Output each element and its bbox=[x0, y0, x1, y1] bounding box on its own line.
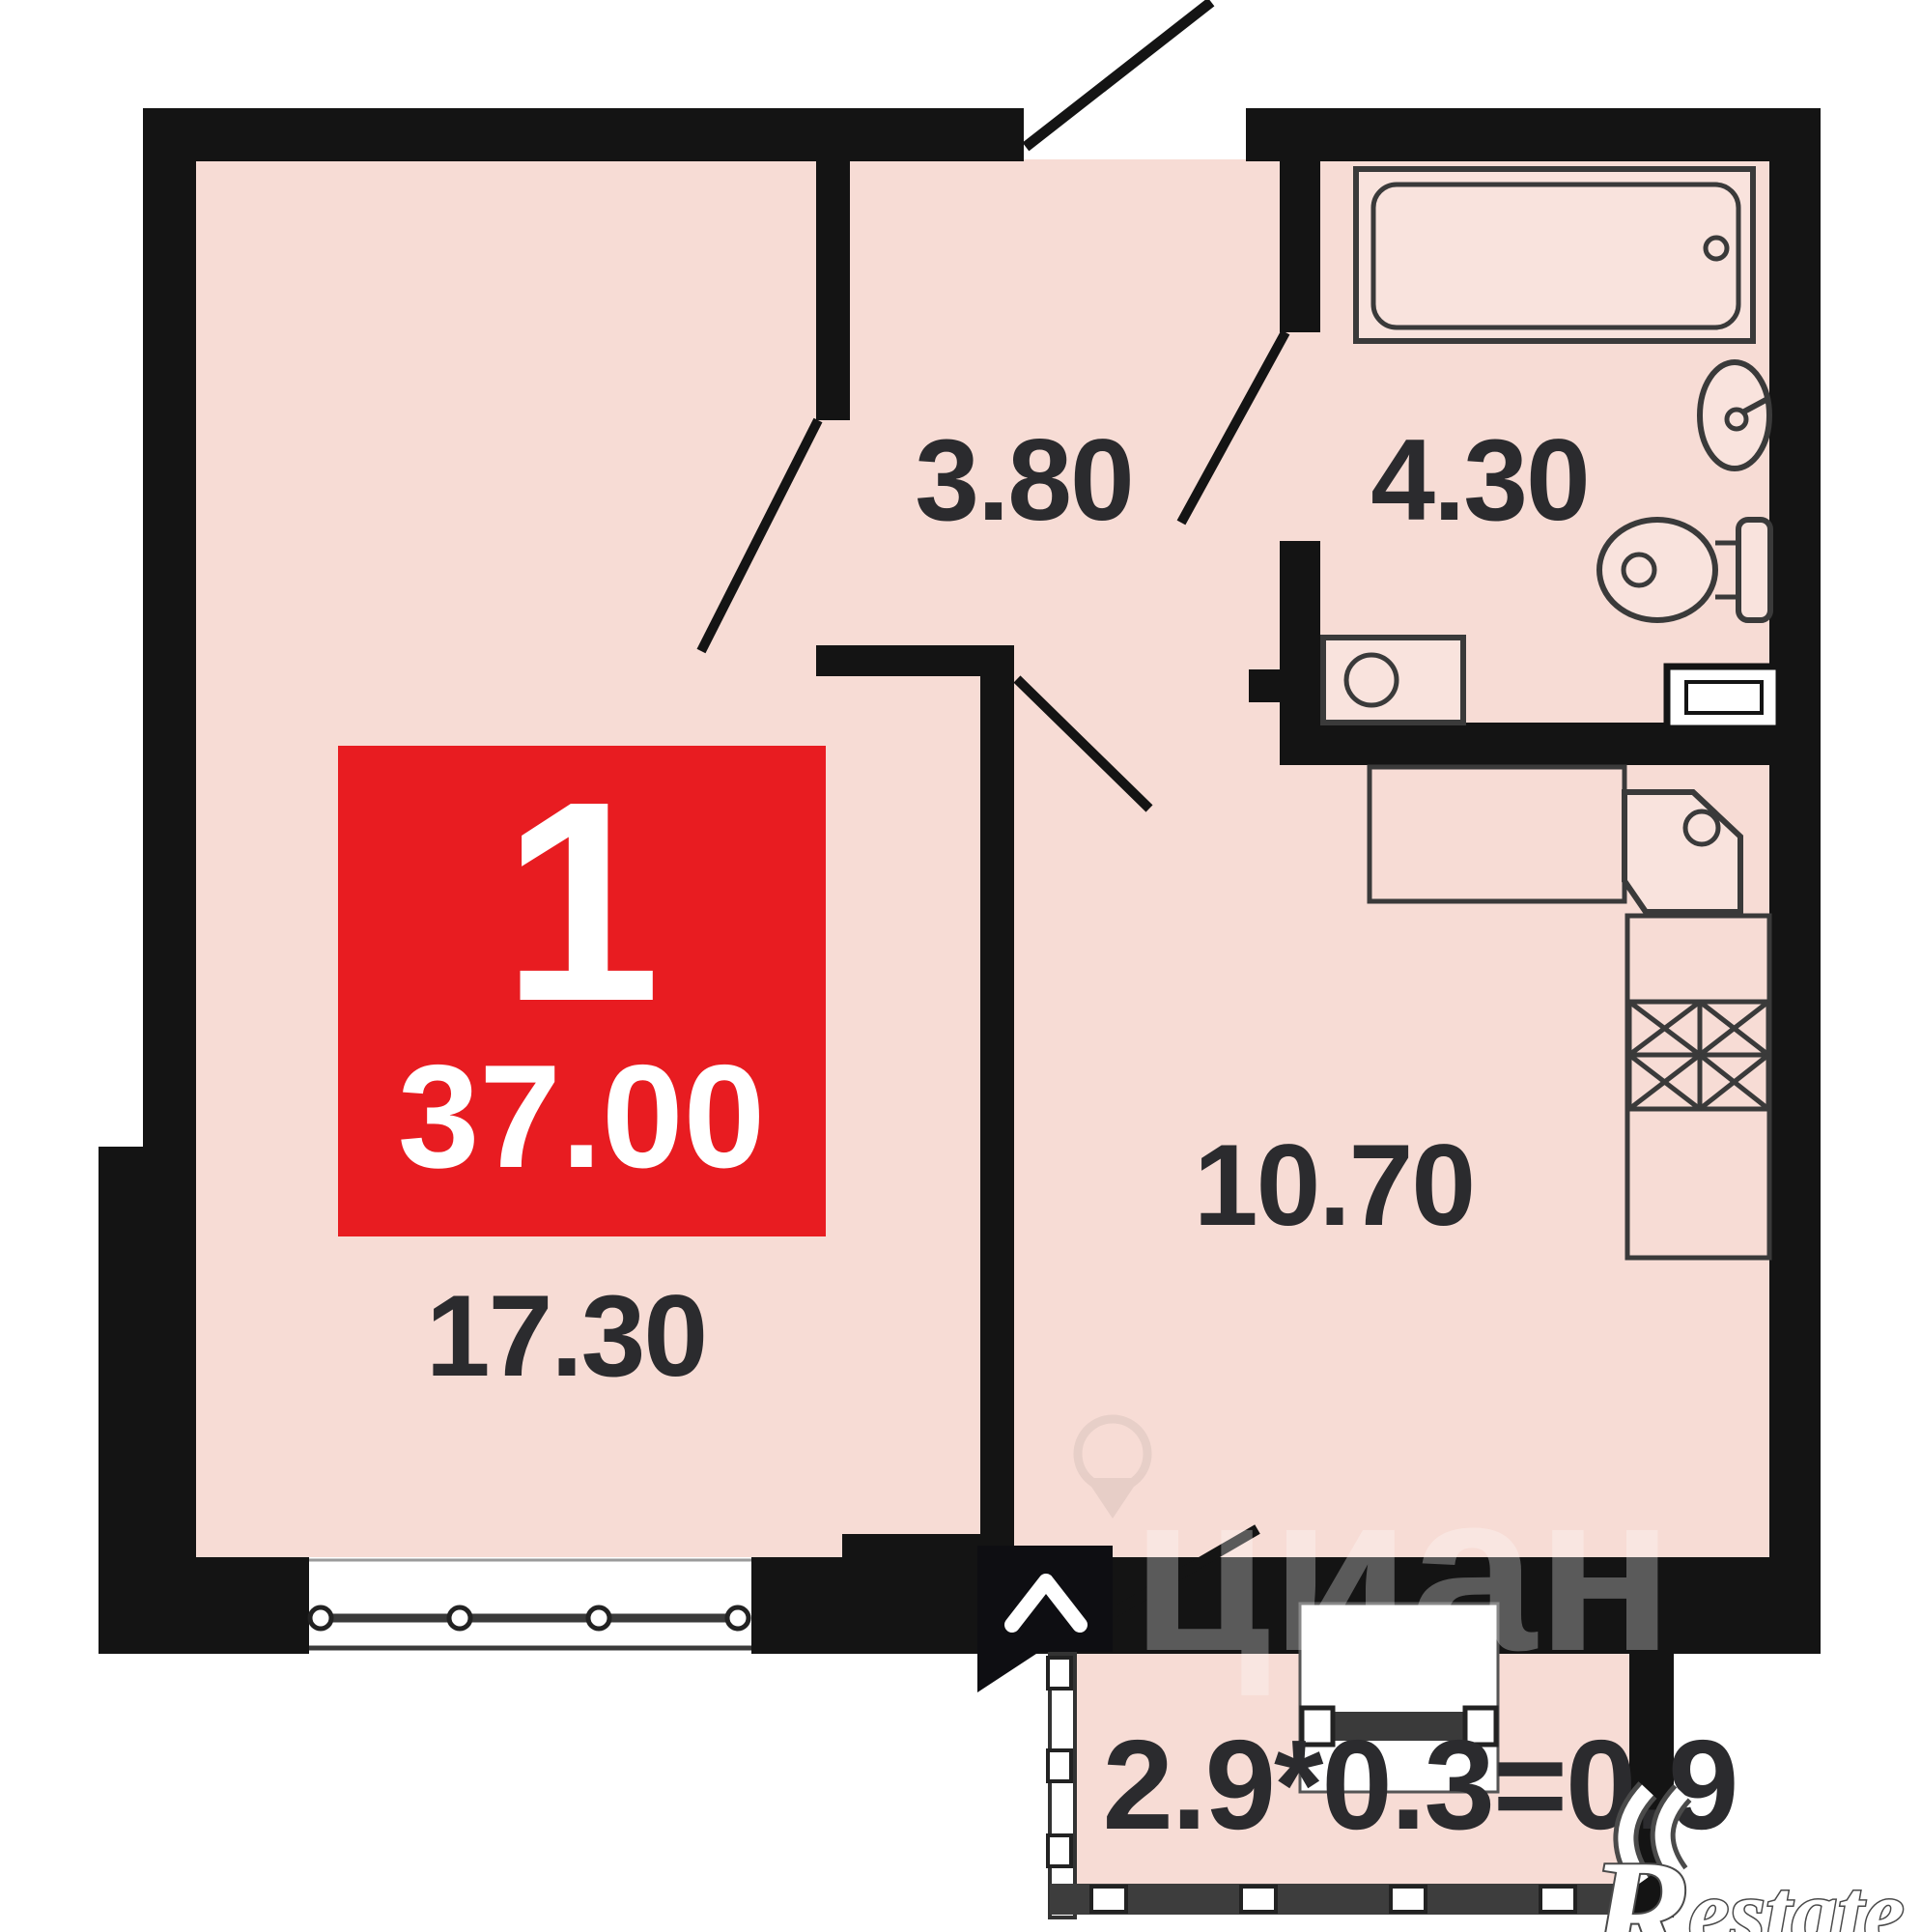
bathroom-sink bbox=[1700, 362, 1769, 469]
balcony-glazing-tick bbox=[1091, 1887, 1126, 1912]
washing-machine bbox=[1323, 638, 1463, 723]
hallway-area-label: 3.80 bbox=[915, 415, 1133, 545]
sink-bowl bbox=[1700, 362, 1769, 469]
balcony-glazing-tick bbox=[1048, 1658, 1071, 1689]
badge-total-area: 37.00 bbox=[398, 1035, 765, 1199]
restate-watermark-initial: R bbox=[1588, 1828, 1692, 1932]
balcony-glazing-tick bbox=[1048, 1835, 1071, 1866]
balcony-glazing-left bbox=[1050, 1654, 1075, 1918]
bathroom-wall-stub bbox=[1249, 669, 1280, 702]
top-wall-left bbox=[143, 108, 1024, 161]
balcony-glazing-tick bbox=[1540, 1887, 1575, 1912]
balcony-glazing-tick bbox=[1048, 1750, 1071, 1781]
window-dot bbox=[310, 1607, 331, 1629]
duct-box bbox=[1667, 667, 1779, 728]
toilet-tank bbox=[1738, 520, 1770, 620]
floorplan-canvas: 1 37.00 3.80 4.30 10.70 17.30 2.9*0.3=0.… bbox=[0, 0, 1921, 1932]
bathroom-area-label: 4.30 bbox=[1370, 415, 1589, 545]
right-wall bbox=[1769, 108, 1821, 1654]
toilet-bowl bbox=[1599, 520, 1715, 620]
cian-watermark-text: циан bbox=[1131, 1444, 1674, 1698]
balcony-glazing-tick bbox=[1241, 1887, 1276, 1912]
living-area-label: 17.30 bbox=[426, 1271, 706, 1401]
restate-watermark-text: estate bbox=[1688, 1861, 1905, 1932]
hall-door-jamb bbox=[816, 406, 850, 420]
bathtub bbox=[1356, 169, 1753, 341]
hallway-t-wall bbox=[816, 645, 1014, 676]
bathroom-door-jamb bbox=[1280, 319, 1320, 332]
living-window bbox=[309, 1557, 751, 1654]
top-wall-right bbox=[1246, 108, 1821, 161]
bathtub-outer bbox=[1356, 169, 1753, 341]
left-wall-upper bbox=[143, 108, 196, 1147]
window-dot bbox=[588, 1607, 609, 1629]
balcony-glazing-tick bbox=[1391, 1887, 1426, 1912]
bathroom-wall-upper bbox=[1280, 159, 1320, 319]
floorplan-svg: 1 37.00 3.80 4.30 10.70 17.30 2.9*0.3=0.… bbox=[0, 0, 1921, 1932]
badge-rooms-count: 1 bbox=[502, 742, 661, 1061]
window-dot bbox=[727, 1607, 749, 1629]
partition-living-hallway bbox=[816, 159, 850, 406]
toilet bbox=[1599, 520, 1770, 620]
area-badge: 1 37.00 bbox=[338, 742, 826, 1236]
stove bbox=[1629, 1002, 1768, 1109]
window-dot bbox=[449, 1607, 470, 1629]
kitchen-area-label: 10.70 bbox=[1194, 1121, 1474, 1250]
partition-living-kitchen bbox=[980, 674, 1014, 1559]
